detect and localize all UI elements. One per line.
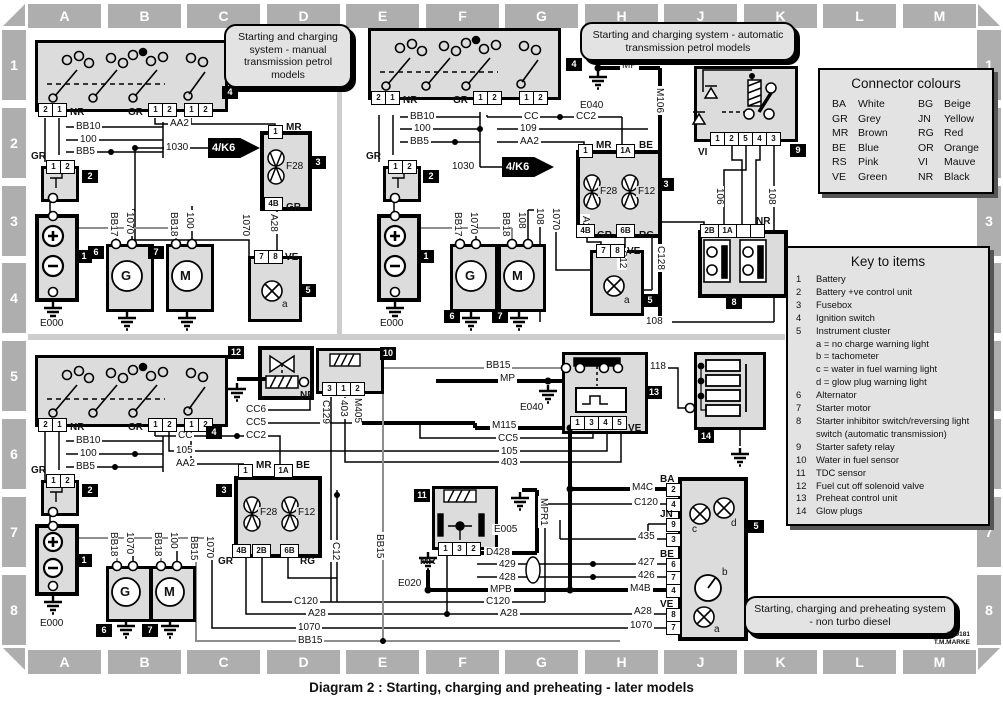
colour-name: White (858, 97, 918, 112)
wire-label: BB17 (452, 210, 462, 238)
key-num: 12 (796, 480, 816, 493)
fuse-label: F28 (284, 161, 305, 172)
pin: 4 (598, 416, 613, 430)
pin: 1 (52, 103, 67, 117)
wire-label: 100 (184, 210, 194, 231)
wire-label: A28 (268, 212, 278, 234)
wire-label: 428 (497, 572, 518, 583)
key-subitem: d = glow plug warning light (796, 376, 980, 389)
key-num: 10 (796, 454, 816, 467)
wire-label: M115 (490, 420, 518, 431)
key-item: 4Ignition switch (796, 312, 980, 325)
wire-label: 1030 (450, 161, 476, 172)
ground-symbol (44, 596, 62, 614)
wire-label: M4C (630, 482, 655, 493)
key-to-items-legend: Key to items 1Battery 2Battery +ve contr… (786, 246, 990, 526)
wire-label: CC2 (574, 111, 598, 122)
colour-code: VE (832, 170, 858, 185)
colour-name: Green (858, 170, 918, 185)
bulb-letter: a (624, 296, 630, 306)
pin: 2 (38, 103, 53, 117)
callout-diesel: Starting, charging and preheating system… (744, 596, 956, 635)
pin: 1A (616, 144, 635, 158)
warning-light-symbol (690, 504, 710, 524)
key-label: TDC sensor (816, 467, 980, 480)
key-label: Fuel cut off solenoid valve (816, 480, 980, 493)
pin: 1 (473, 91, 488, 105)
connector-colours-grid: BAWhite BGBeige GRGrey JNYellow MRBrown … (820, 95, 992, 192)
colour-code: MR (832, 126, 858, 141)
wire-label: BB18 (108, 530, 118, 558)
colour-name: Black (944, 170, 982, 185)
ground-symbol (731, 448, 749, 466)
ground-label: E005 (492, 524, 519, 535)
pin: 1 (46, 474, 61, 488)
key-num: 2 (796, 286, 816, 299)
key-item: 6Alternator (796, 389, 980, 402)
key-label: Battery (816, 273, 980, 286)
legend-title: Connector colours (820, 70, 992, 95)
ground-label: E000 (38, 318, 65, 329)
colour-name: Blue (858, 141, 918, 156)
colour-code: RG (918, 126, 944, 141)
colour-name: Grey (858, 112, 918, 127)
item-tag-2: 2 (82, 170, 98, 183)
item-tag-4: 4 (206, 426, 222, 439)
wire-label: 108 (644, 316, 665, 327)
connector-colour-label: MR (420, 556, 436, 567)
item-tag-2: 2 (82, 484, 98, 497)
bulb-letter: b (722, 568, 728, 578)
ground-symbol (462, 312, 480, 330)
key-item: 2Battery +ve control unit (796, 286, 980, 299)
connector-colour-label: BE (296, 460, 310, 471)
wire-label: CC (522, 111, 540, 122)
pin: 2 (666, 483, 681, 497)
key-label: Water in fuel sensor (816, 454, 980, 467)
connector-colour-label: MR (286, 122, 302, 133)
pin: 2B (252, 544, 271, 558)
item-tag-2: 2 (423, 170, 439, 183)
key-label: c = water in fuel warning light (816, 363, 980, 376)
wire-label: CC2 (244, 430, 268, 441)
wire-label: AA2 (174, 458, 197, 469)
pin: 9 (666, 518, 681, 532)
pin: 7 (666, 571, 681, 585)
ground-symbol (589, 71, 607, 89)
fuse-label: F12 (296, 507, 317, 518)
wire-label: 429 (497, 559, 518, 570)
ground-symbol (539, 385, 557, 403)
key-subitem: c = water in fuel warning light (796, 363, 980, 376)
pin: 2 (198, 103, 213, 117)
wire-label: 118 (648, 361, 668, 372)
connector-colour-label: GR (218, 556, 233, 567)
wire-label: BB10 (408, 111, 436, 122)
pin: 5 (612, 416, 627, 430)
pin: 1 (148, 103, 163, 117)
key-item: 8Starter inhibitor switch/reversing ligh… (796, 415, 980, 441)
warning-light-symbol (714, 498, 734, 518)
connector-colour-label: GR (286, 202, 301, 213)
connector-colour-label: VE (627, 246, 640, 257)
item-tag-7: 7 (492, 310, 508, 323)
pin: 1 (184, 103, 199, 117)
wire-label: A28 (498, 608, 520, 619)
pin: 2 (402, 160, 417, 174)
connector-colour-label: VE (628, 423, 641, 434)
connector-colour-label: NR (300, 390, 314, 401)
pin: 3 (584, 416, 599, 430)
drawing-reference: H29181 (900, 631, 970, 639)
connector-colour-label: NR (70, 107, 84, 118)
wire-label: BB10 (74, 435, 102, 446)
alternator-letter: G (465, 269, 475, 283)
callout-manual-petrol: Starting and charging system - manual tr… (224, 24, 352, 88)
key-label: Glow plugs (816, 505, 980, 518)
colour-code: VI (918, 155, 944, 170)
pin: 6B (616, 224, 635, 238)
wire-label: 108 (534, 206, 544, 227)
item-tag-10: 10 (380, 347, 396, 360)
key-num: 8 (796, 415, 816, 441)
item-tag-3: 3 (216, 484, 232, 497)
key-label: Fusebox (816, 299, 980, 312)
wire-label: 1070 (468, 210, 478, 236)
pin: 6 (666, 558, 681, 572)
connector-colour-label: VE (285, 252, 298, 263)
wire-label: 1070 (550, 206, 560, 232)
pin: 1 (710, 132, 725, 146)
pin: 7 (666, 621, 681, 635)
pin: 2B (700, 224, 719, 238)
connector-colour-label: GR (31, 465, 46, 476)
wire-label: A28 (306, 608, 328, 619)
pin: 1 (184, 418, 199, 432)
connector-colour-label: NR (403, 95, 417, 106)
wire-label: 435 (636, 531, 657, 542)
pin: 1 (46, 160, 61, 174)
key-label: Starter motor (816, 402, 980, 415)
pin: 1 (438, 542, 453, 556)
wire-label: C128 (655, 244, 665, 272)
wire-label: AA2 (168, 118, 191, 129)
key-num: 3 (796, 299, 816, 312)
key-item: 7Starter motor (796, 402, 980, 415)
item-tag-9: 9 (790, 144, 806, 157)
bulb-letter: a (282, 300, 288, 310)
ground-symbol (118, 312, 136, 330)
ground-symbol (178, 312, 196, 330)
connector-colour-label: GR (128, 107, 143, 118)
relay-internals (693, 70, 776, 124)
key-label: Preheat control unit (816, 492, 980, 505)
pin: 6B (280, 544, 299, 558)
pin: 3 (322, 382, 337, 396)
pin: 2 (350, 382, 365, 396)
pin: 2 (162, 103, 177, 117)
pin: 1 (388, 160, 403, 174)
wire-label: M4B (628, 583, 653, 594)
water-sensor-internals (330, 354, 360, 366)
wire-label: 427 (636, 557, 657, 568)
wire-label: BB17 (108, 210, 118, 238)
key-item: 1Battery (796, 273, 980, 286)
key-rows: 1Battery 2Battery +ve control unit 3Fuse… (788, 273, 988, 524)
wire-label: 100 (412, 123, 433, 134)
wire-label: 105 (499, 446, 520, 457)
wire-label: 108 (766, 186, 776, 207)
key-num (796, 338, 816, 351)
key-num: 9 (796, 441, 816, 454)
tachometer-symbol (695, 575, 721, 601)
key-label: Instrument cluster (816, 325, 980, 338)
key-label: Ignition switch (816, 312, 980, 325)
ground-label: E000 (378, 318, 405, 329)
colour-code: RS (832, 155, 858, 170)
key-item: 9Starter safety relay (796, 441, 980, 454)
ground-label: E000 (38, 618, 65, 629)
colour-code: BE (832, 141, 858, 156)
item-tag-1: 1 (418, 250, 434, 263)
pin: 2 (60, 160, 75, 174)
tdc-sensor-internals (438, 490, 484, 540)
colour-code: BA (832, 97, 858, 112)
pin: 2 (371, 91, 386, 105)
pin: 1 (268, 125, 283, 139)
pin: 4 (752, 132, 767, 146)
key-item: 13Preheat control unit (796, 492, 980, 505)
wire-label: BB18 (168, 210, 178, 238)
ignition-contacts (47, 364, 208, 418)
ground-symbol (161, 620, 179, 638)
pin: 7 (254, 250, 269, 264)
wire-label: A28 (632, 606, 654, 617)
key-num: 11 (796, 467, 816, 480)
pin: 2 (60, 474, 75, 488)
fuse-label: F28 (598, 186, 619, 197)
connector-colour-label: GR (453, 95, 468, 106)
pin: 7 (596, 244, 611, 258)
key-item: 3Fusebox (796, 299, 980, 312)
key-num: 7 (796, 402, 816, 415)
colour-code: GR (832, 112, 858, 127)
key-num (796, 376, 816, 389)
wire-label: C120 (484, 596, 512, 607)
twisted-pair-marker (526, 557, 540, 583)
wire-label: CC6 (244, 404, 268, 415)
item-tag-6: 6 (96, 624, 112, 637)
wire-label: MP (498, 373, 517, 384)
item-tag-3: 3 (310, 156, 326, 169)
connector-colours-legend: Connector colours BAWhite BGBeige GRGrey… (818, 68, 994, 194)
battery-symbols (43, 226, 405, 577)
connector-colour-label: GR (597, 230, 612, 241)
pin: 4B (264, 197, 283, 211)
pin: 1 (519, 91, 534, 105)
pin: 2 (533, 91, 548, 105)
pin (736, 224, 751, 238)
wire-label: 108 (516, 210, 526, 231)
wire-label: 1070 (124, 210, 134, 236)
connector-colour-label: GR (128, 422, 143, 433)
item-tag-11: 11 (414, 489, 430, 502)
control-unit-internals (50, 172, 404, 502)
pin: 5 (738, 132, 753, 146)
key-num: 14 (796, 505, 816, 518)
pin: 8 (666, 608, 681, 622)
wire-label: BB15 (484, 360, 512, 371)
key-item: 11TDC sensor (796, 467, 980, 480)
colour-name: Pink (858, 155, 918, 170)
item-tag-6: 6 (88, 246, 104, 259)
wire-label: BB18 (152, 530, 162, 558)
connector-colour-label: NR (756, 216, 770, 227)
connector-colour-label: NR (70, 422, 84, 433)
wire-label: M106 (654, 86, 664, 115)
colour-name: Red (944, 126, 982, 141)
wire-label: 106 (714, 186, 724, 207)
ground-symbol (117, 620, 135, 638)
solenoid-valve-internals (237, 356, 298, 388)
wire-label: C120 (632, 497, 660, 508)
key-label: Battery +ve control unit (816, 286, 980, 299)
connector-colour-label: BE (639, 140, 653, 151)
ground-symbol (386, 302, 404, 320)
pin: 2 (38, 418, 53, 432)
key-num (796, 363, 816, 376)
wire-label: C129 (320, 398, 330, 426)
alternator-letter: G (120, 585, 130, 599)
item-tag-13: 13 (646, 386, 662, 399)
item-tag-7: 7 (142, 624, 158, 637)
wire-label: 1070 (204, 534, 214, 560)
key-label: b = tachometer (816, 350, 980, 363)
pin: 8 (610, 244, 625, 258)
ignition-contacts (47, 49, 208, 103)
callout-auto-petrol: Starting and charging system - automatic… (580, 22, 796, 61)
wire-label: 1070 (628, 620, 654, 631)
pin: 3 (766, 132, 781, 146)
wire-label: 100 (78, 448, 99, 459)
warning-light-symbol (262, 281, 282, 301)
pin: 1 (238, 464, 253, 478)
item-tag-6: 6 (444, 310, 460, 323)
wire-label: BB5 (74, 461, 97, 472)
wire-label: 100 (168, 530, 178, 551)
wire-label: BB15 (374, 532, 384, 560)
pin: 1 (570, 416, 585, 430)
key-num: 4 (796, 312, 816, 325)
item-tag-5: 5 (748, 520, 764, 533)
inhibitor-switch-internals (704, 240, 766, 282)
key-num: 5 (796, 325, 816, 338)
starter-letter: M (512, 269, 523, 283)
pin: 8 (268, 250, 283, 264)
connector-colour-label: GR (366, 151, 381, 162)
pin: 4B (232, 544, 251, 558)
diagram-caption: Diagram 2 : Starting, charging and prehe… (0, 680, 1003, 695)
item-tag-8: 8 (726, 296, 742, 309)
pin: 1 (52, 418, 67, 432)
connector-colour-label: GR (31, 151, 46, 162)
item-tag-1: 1 (76, 554, 92, 567)
key-subitem: b = tachometer (796, 350, 980, 363)
ground-symbol (511, 492, 529, 510)
key-item: 12Fuel cut off solenoid valve (796, 480, 980, 493)
wire-label: 109 (518, 123, 539, 134)
legend-title: Key to items (788, 248, 988, 273)
ground-symbol (510, 312, 528, 330)
colour-name: Beige (944, 97, 982, 112)
key-num: 13 (796, 492, 816, 505)
wire-label: BB18 (500, 210, 510, 238)
pin: 4 (666, 584, 681, 598)
pin: 1 (385, 91, 400, 105)
wire-label: CC5 (496, 433, 520, 444)
connector-colour-label: VI (698, 147, 707, 158)
wire-label: 105 (174, 445, 195, 456)
wire-label: 1070 (296, 622, 322, 633)
warning-light-symbol (604, 276, 624, 296)
item-tag-5: 5 (642, 294, 658, 307)
fuse-label: F12 (636, 186, 657, 197)
wire-label: 1070 (124, 530, 134, 556)
wire-label: C12 (330, 540, 340, 562)
colour-code: OR (918, 141, 944, 156)
wire-label: BB15 (296, 635, 324, 646)
connector-colour-label: MR (256, 460, 272, 471)
colour-code: BG (918, 97, 944, 112)
item-tag-3: 3 (658, 178, 674, 191)
starter-letter: M (180, 269, 191, 283)
key-subitem: a = no charge warning light (796, 338, 980, 351)
pin: 1 (148, 418, 163, 432)
connector-colour-label: RG (300, 556, 315, 567)
fuse-symbol (268, 150, 284, 184)
pin: 1A (274, 464, 293, 478)
connector-colour-label: MR (596, 140, 612, 151)
wire-label: CC5 (244, 417, 268, 428)
pin: 1A (718, 224, 737, 238)
wire-label: 1030 (164, 142, 190, 153)
key-item: 14Glow plugs (796, 505, 980, 518)
pin: 3 (666, 533, 681, 547)
colour-code: NR (918, 170, 944, 185)
bulb-letter: c (692, 525, 697, 535)
wire-label: 100 (78, 134, 99, 145)
pin: 1 (578, 144, 593, 158)
wiring-diagram-page: A B C D E F G H J K L M A B C D E F G H … (0, 0, 1003, 702)
warning-light-symbol (694, 607, 714, 627)
ground-symbol (228, 383, 246, 401)
bulb-letter: a (714, 625, 720, 635)
key-label: Starter inhibitor switch/reversing light… (816, 415, 980, 441)
alternator-letter: G (121, 269, 131, 283)
ignition-contacts (380, 37, 541, 91)
pin: 2 (162, 418, 177, 432)
ground-label: E040 (578, 100, 605, 111)
item-tag-12: 12 (228, 346, 244, 359)
pin: 2 (724, 132, 739, 146)
drawing-reference: T.M.MARKE (900, 639, 970, 647)
wire-label: AA2 (518, 136, 541, 147)
fuse-label: F28 (258, 507, 279, 518)
wire-label: MP (620, 60, 639, 71)
wire-label: M405 (352, 396, 362, 425)
colour-name: Yellow (944, 112, 982, 127)
colour-name: Brown (858, 126, 918, 141)
